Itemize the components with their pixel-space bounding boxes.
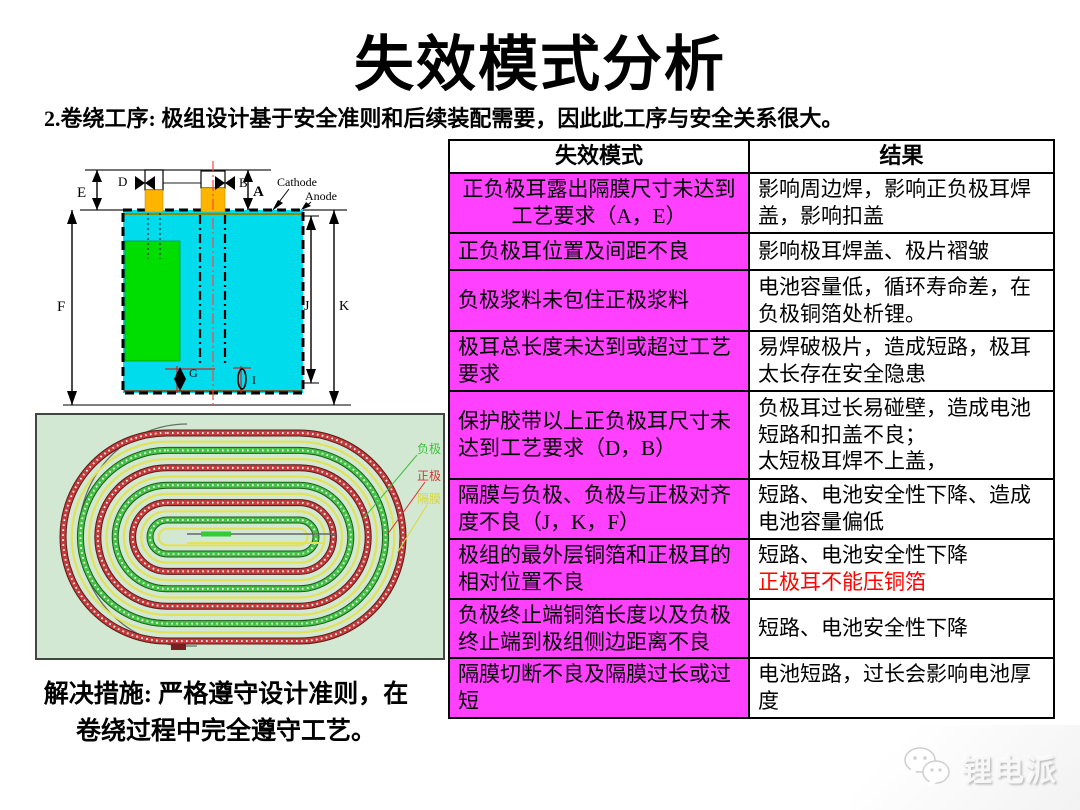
table-row: 隔膜与负极、负极与正极对齐度不良（J，K，F） 短路、电池安全性下降、造成电池容… bbox=[449, 479, 1054, 539]
legend-cathode: 正极 bbox=[417, 469, 441, 483]
failure-mode-cell: 隔膜切断不良及隔膜过长或过短 bbox=[449, 658, 749, 718]
failure-mode-cell: 极耳总长度未达到或超过工艺要求 bbox=[449, 331, 749, 391]
result-cell: 影响周边焊，影响正负极耳焊盖，影响扣盖 bbox=[749, 173, 1054, 233]
table-row: 极耳总长度未达到或超过工艺要求 易焊破极片，造成短路，极耳太长存在安全隐患 bbox=[449, 331, 1054, 391]
result-cell: 电池容量低，循环寿命差，在负极铜箔处析锂。 bbox=[749, 270, 1054, 331]
svg-text:A: A bbox=[253, 184, 264, 200]
failure-mode-cell: 负极浆料未包住正极浆料 bbox=[449, 270, 749, 331]
svg-text:K: K bbox=[339, 299, 349, 314]
watermark-label: 锂电派 bbox=[962, 746, 1058, 790]
table-header-row: 失效模式 结果 bbox=[449, 140, 1054, 173]
legend-anode: 负极 bbox=[417, 442, 441, 456]
battery-dimension-diagram: E A D B F J K bbox=[55, 153, 450, 410]
result-cell: 负极耳过长易碰壁，造成电池短路和扣盖不良； 太短极耳焊不上盖， bbox=[749, 391, 1054, 479]
dimension-J: J bbox=[304, 216, 316, 383]
failure-mode-cell: 极组的最外层铜箔和正极耳的相对位置不良 bbox=[449, 539, 749, 599]
dimension-E: E bbox=[77, 170, 102, 210]
svg-text:I: I bbox=[252, 373, 256, 387]
result-cell: 短路、电池安全性下降 bbox=[749, 599, 1054, 658]
failure-mode-cell: 保护胶带以上正负极耳尺寸未达到工艺要求（D，B） bbox=[449, 391, 749, 479]
watermark: 锂电派 bbox=[850, 725, 1080, 810]
wechat-icon bbox=[902, 745, 956, 791]
col-header-failure-mode: 失效模式 bbox=[449, 140, 749, 173]
result-cell: 短路、电池安全性下降 正极耳不能压铜箔 bbox=[749, 539, 1054, 599]
anode-coating-region bbox=[125, 241, 180, 361]
svg-text:E: E bbox=[77, 185, 86, 201]
dimension-K: K bbox=[329, 210, 349, 405]
table-row: 负极终止端铜箔长度以及负极终止端到极组侧边距离不良 短路、电池安全性下降 bbox=[449, 599, 1054, 658]
svg-text:Cathode: Cathode bbox=[277, 175, 317, 189]
table-row: 正负极耳位置及间距不良 影响极耳焊盖、极片褶皱 bbox=[449, 233, 1054, 270]
red-warning-text: 正极耳不能压铜箔 bbox=[758, 569, 1045, 596]
svg-text:B: B bbox=[239, 175, 248, 190]
solution-note: 解决措施: 严格遵守设计准则，在 卷绕过程中完全遵守工艺。 bbox=[0, 676, 452, 750]
legend-separator: 隔膜 bbox=[417, 492, 441, 506]
slide-canvas: 失效模式分析 2.卷绕工序: 极组设计基于安全准则和后续装配需要，因此此工序与安… bbox=[0, 0, 1080, 810]
winding-diagram: 负极 正极 隔膜 bbox=[35, 413, 445, 660]
table-row: 正负极耳露出隔膜尺寸未达到工艺要求（A，E） 影响周边焊，影响正负极耳焊盖，影响… bbox=[449, 173, 1054, 233]
col-header-result: 结果 bbox=[749, 140, 1054, 173]
table-row: 极组的最外层铜箔和正极耳的相对位置不良 短路、电池安全性下降 正极耳不能压铜箔 bbox=[449, 539, 1054, 599]
svg-text:G: G bbox=[189, 366, 198, 380]
svg-text:F: F bbox=[57, 299, 65, 315]
svg-text:J: J bbox=[304, 299, 310, 314]
result-cell: 短路、电池安全性下降、造成电池容量偏低 bbox=[749, 479, 1054, 539]
anode-label: Anode bbox=[301, 189, 337, 210]
page-title: 失效模式分析 bbox=[0, 16, 1080, 103]
table-row: 负极浆料未包住正极浆料 电池容量低，循环寿命差，在负极铜箔处析锂。 bbox=[449, 270, 1054, 331]
svg-text:D: D bbox=[118, 174, 127, 189]
svg-text:Anode: Anode bbox=[305, 189, 337, 203]
result-cell: 影响极耳焊盖、极片褶皱 bbox=[749, 233, 1054, 270]
cathode-tab bbox=[145, 170, 163, 212]
table-row: 保护胶带以上正负极耳尺寸未达到工艺要求（D，B） 负极耳过长易碰壁，造成电池短路… bbox=[449, 391, 1054, 479]
winding-end-tab bbox=[171, 644, 186, 650]
subtitle: 2.卷绕工序: 极组设计基于安全准则和后续装配需要，因此此工序与安全关系很大。 bbox=[44, 101, 1056, 133]
result-cell: 易焊破极片，造成短路，极耳太长存在安全隐患 bbox=[749, 331, 1054, 391]
failure-mode-table: 失效模式 结果 正负极耳露出隔膜尺寸未达到工艺要求（A，E） 影响周边焊，影响正… bbox=[448, 139, 1055, 719]
result-cell: 电池短路，过长会影响电池厚度 bbox=[749, 658, 1054, 718]
failure-mode-cell: 正负极耳位置及间距不良 bbox=[449, 233, 749, 270]
table-row: 隔膜切断不良及隔膜过长或过短 电池短路，过长会影响电池厚度 bbox=[449, 658, 1054, 718]
failure-mode-cell: 负极终止端铜箔长度以及负极终止端到极组侧边距离不良 bbox=[449, 599, 749, 658]
dimension-F: F bbox=[57, 210, 77, 405]
failure-mode-cell: 隔膜与负极、负极与正极对齐度不良（J，K，F） bbox=[449, 479, 749, 539]
failure-mode-cell: 正负极耳露出隔膜尺寸未达到工艺要求（A，E） bbox=[449, 173, 749, 233]
